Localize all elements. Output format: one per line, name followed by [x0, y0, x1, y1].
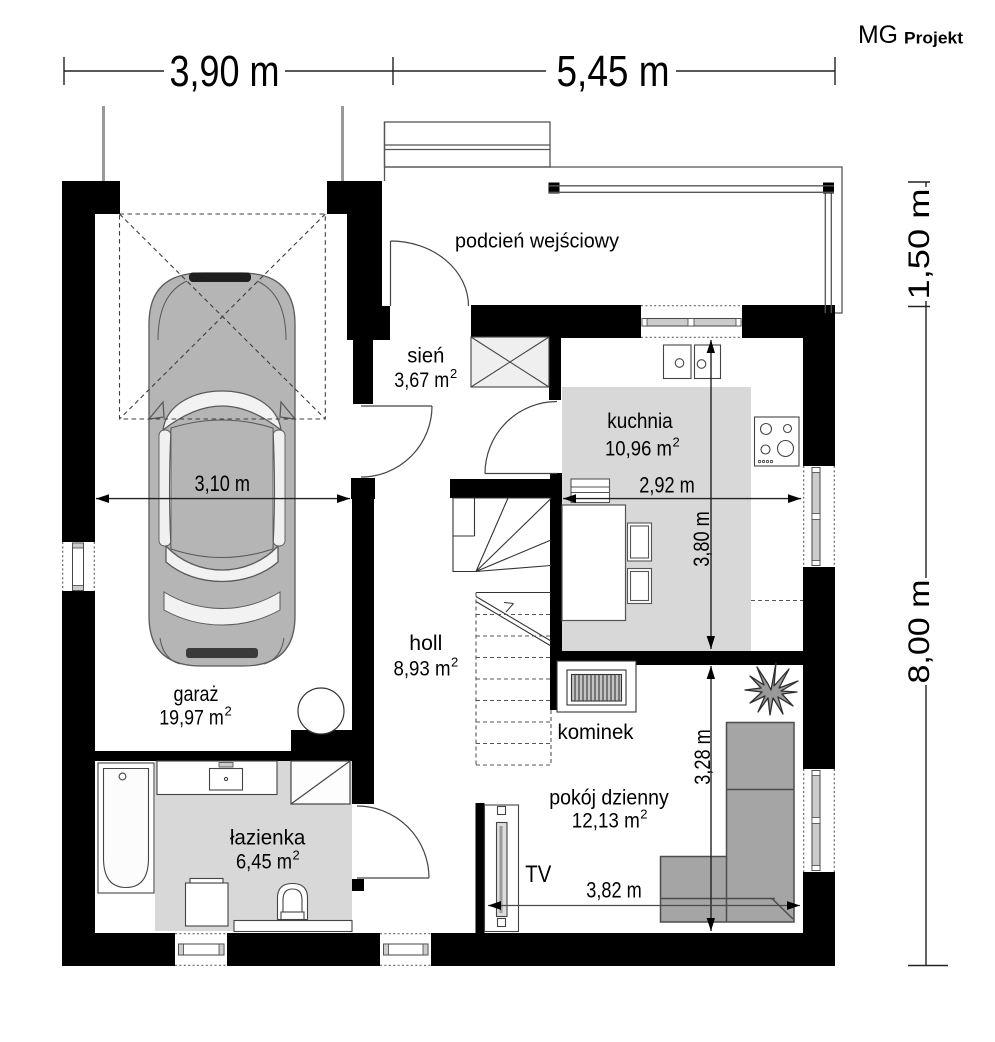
svg-text:podcień wejściowy: podcień wejściowy — [455, 230, 620, 253]
svg-text:2: 2 — [450, 366, 457, 381]
svg-text:10,96 m: 10,96 m — [605, 437, 672, 461]
svg-text:TV: TV — [525, 861, 551, 888]
svg-text:3,67 m: 3,67 m — [394, 368, 449, 392]
svg-text:łazienka: łazienka — [230, 826, 306, 850]
svg-text:19,97 m: 19,97 m — [159, 706, 224, 730]
svg-text:pokój dzienny: pokój dzienny — [549, 786, 669, 810]
svg-text:3,90 m: 3,90 m — [170, 47, 280, 96]
svg-text:1,50 m: 1,50 m — [903, 189, 936, 300]
svg-text:2: 2 — [640, 807, 647, 822]
svg-text:2: 2 — [225, 704, 232, 719]
svg-text:2: 2 — [451, 655, 458, 670]
svg-text:8,93 m: 8,93 m — [394, 657, 451, 681]
svg-text:3,28 m: 3,28 m — [690, 729, 715, 785]
svg-text:12,13 m: 12,13 m — [572, 809, 640, 833]
svg-text:holl: holl — [409, 631, 442, 655]
svg-text:kuchnia: kuchnia — [607, 409, 673, 433]
svg-text:garaż: garaż — [174, 682, 219, 706]
svg-text:sień: sień — [407, 344, 444, 368]
svg-text:Projekt: Projekt — [904, 30, 964, 48]
svg-text:2: 2 — [293, 848, 300, 863]
svg-text:2: 2 — [673, 435, 680, 450]
svg-text:MG: MG — [858, 21, 898, 49]
svg-text:kominek: kominek — [558, 720, 634, 744]
svg-text:6,45 m: 6,45 m — [236, 850, 292, 874]
svg-text:3,82 m: 3,82 m — [586, 878, 642, 903]
svg-text:2,92 m: 2,92 m — [639, 472, 695, 497]
svg-text:3,10 m: 3,10 m — [195, 471, 251, 496]
svg-text:5,45 m: 5,45 m — [557, 47, 670, 96]
svg-text:3,80 m: 3,80 m — [689, 511, 714, 567]
svg-text:8,00 m: 8,00 m — [903, 580, 936, 684]
